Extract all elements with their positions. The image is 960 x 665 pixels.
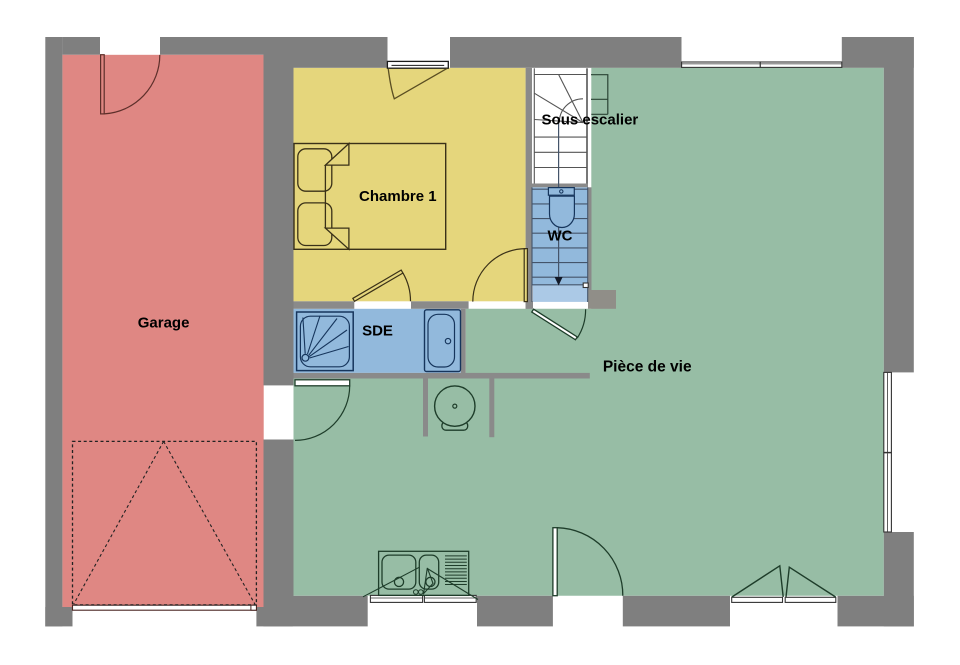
svg-text:Sous escalier: Sous escalier <box>542 112 639 129</box>
svg-text:Pièce de vie: Pièce de vie <box>603 359 692 376</box>
svg-text:Chambre 1: Chambre 1 <box>359 188 437 205</box>
svg-text:SDE: SDE <box>362 323 393 340</box>
svg-text:WC: WC <box>548 228 573 245</box>
svg-text:Garage: Garage <box>138 314 190 331</box>
